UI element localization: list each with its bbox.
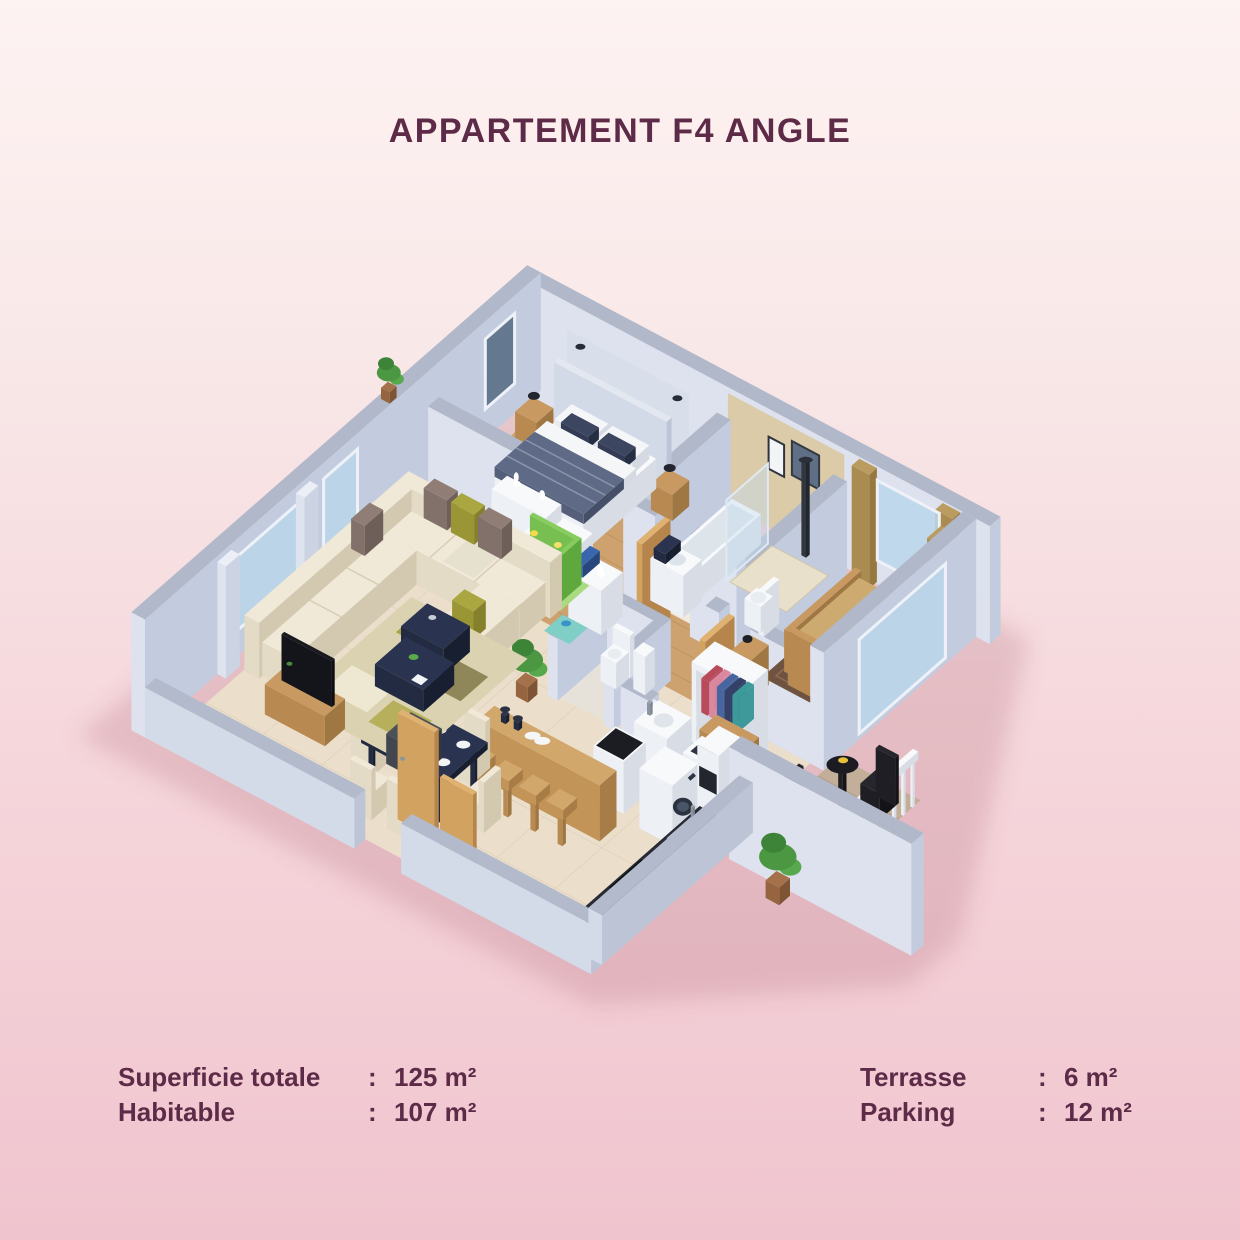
- stat-label: Habitable: [118, 1095, 368, 1130]
- stat-separator: :: [1038, 1060, 1064, 1095]
- stat-total-area: Superficie totale : 125 m²: [118, 1060, 476, 1095]
- stat-separator: :: [368, 1060, 394, 1095]
- stat-value: 12 m²: [1064, 1095, 1132, 1130]
- stats-right: Terrasse : 6 m² Parking : 12 m²: [860, 1060, 1132, 1130]
- stat-separator: :: [368, 1095, 394, 1130]
- stat-parking-area: Parking : 12 m²: [860, 1095, 1132, 1130]
- stat-value: 107 m²: [394, 1095, 476, 1130]
- floorplan-3d-illustration: [0, 0, 1240, 1240]
- stat-terrace-area: Terrasse : 6 m²: [860, 1060, 1132, 1095]
- stats-left: Superficie totale : 125 m² Habitable : 1…: [118, 1060, 476, 1130]
- poster-background: { "title": "APPARTEMENT F4 ANGLE", "stat…: [0, 0, 1240, 1240]
- stat-value: 125 m²: [394, 1060, 476, 1095]
- page-title: APPARTEMENT F4 ANGLE: [0, 112, 1240, 151]
- stat-separator: :: [1038, 1095, 1064, 1130]
- stat-label: Terrasse: [860, 1060, 1038, 1095]
- stat-label: Superficie totale: [118, 1060, 368, 1095]
- stat-label: Parking: [860, 1095, 1038, 1130]
- stat-livable-area: Habitable : 107 m²: [118, 1095, 476, 1130]
- stat-value: 6 m²: [1064, 1060, 1117, 1095]
